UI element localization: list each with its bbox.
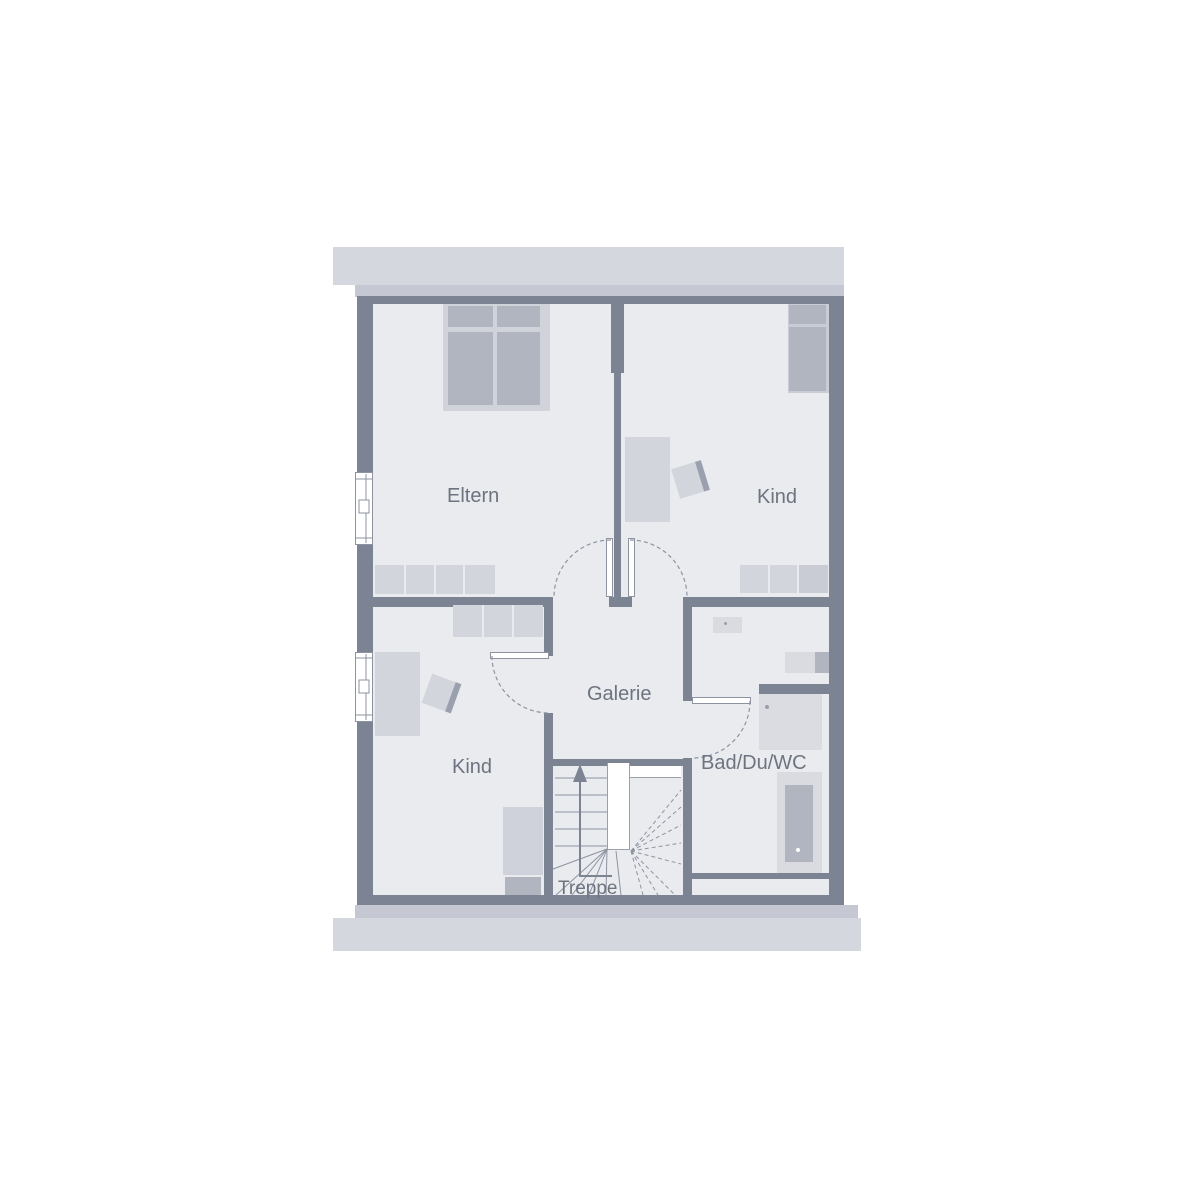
door-leaf-eltern [606, 538, 613, 597]
stair-void-horizontal [630, 766, 681, 778]
room-label-treppe: Treppe [558, 879, 618, 899]
window-icon-eltern [355, 472, 373, 545]
window-icon-kind-bottom [355, 652, 373, 722]
bed-pillow-left [448, 306, 493, 327]
stair-void-vertical [607, 763, 630, 850]
dresser-section [799, 565, 828, 593]
room-label-eltern: Eltern [447, 486, 499, 506]
wall-bad-left-lower [683, 758, 692, 895]
wall-bad-knee [692, 873, 829, 879]
dresser-section [740, 565, 768, 593]
wall-center-thin [614, 373, 621, 597]
toilet-cistern [815, 652, 829, 673]
sink-drain [724, 622, 727, 625]
room-label-bad: Bad/Du/WC [701, 753, 807, 773]
roof-band-top-light [333, 247, 844, 285]
roof-band-bottom-dark [355, 905, 858, 918]
wall-center-upper [611, 304, 624, 373]
bed-pillow-right [497, 306, 540, 327]
bed-mattress-top [789, 327, 826, 391]
room-label-kind-top: Kind [757, 487, 797, 507]
divider [512, 605, 514, 637]
bed-mattress-bottom [503, 807, 543, 875]
room-label-kind-bottom: Kind [452, 757, 492, 777]
door-leaf-kind-bottom [490, 652, 549, 659]
bathtub-drain [796, 848, 800, 852]
wall-bad-left-upper [683, 597, 692, 701]
room-label-galerie: Galerie [587, 684, 651, 704]
wardrobe-kind-bottom [453, 605, 543, 637]
toilet-bowl [785, 652, 815, 673]
sideboard-eltern [375, 565, 495, 594]
wall-kind-bottom-right-lower [544, 713, 553, 895]
door-leaf-bad [692, 697, 751, 704]
shower-drain [765, 705, 769, 709]
wall-center-stub [609, 597, 632, 607]
divider [404, 565, 406, 594]
divider [482, 605, 484, 637]
shower [759, 694, 822, 750]
desk-kind-bottom [375, 652, 420, 736]
wall-kind-bottom-right-upper [544, 607, 553, 656]
bed-mattress-right [497, 332, 540, 405]
roof-band-bottom-light [333, 918, 861, 951]
bed-pillow-top [789, 305, 826, 324]
bed-pillow-bottom [505, 877, 541, 895]
sink [713, 617, 742, 633]
dresser-section [770, 565, 797, 593]
desk-kind-top [625, 437, 670, 522]
divider [463, 565, 465, 594]
wall-kind-top-bottom [689, 597, 829, 607]
floor-plan-canvas: Eltern Kind Kind Galerie Bad/Du/WC Trepp… [0, 0, 1200, 1200]
door-leaf-kind-top [628, 538, 635, 597]
bed-mattress-left [448, 332, 493, 405]
divider [434, 565, 436, 594]
wall-bad-partition [759, 684, 829, 694]
